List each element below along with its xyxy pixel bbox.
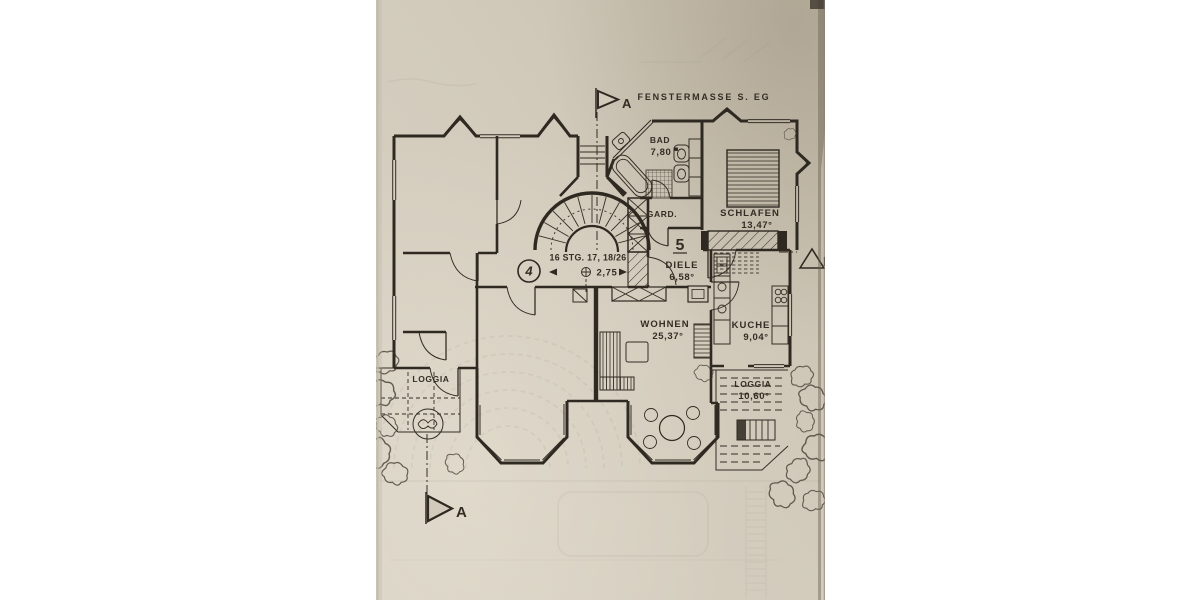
area-label-wohnen: 25,37° (652, 331, 683, 342)
stairs-note: 16 STG. 17, 18/26 (550, 253, 627, 263)
plan-note: FENSTERMASSE S. EG (638, 92, 771, 102)
room-label-gard: GARD. (647, 209, 677, 219)
bath-tiles (646, 170, 672, 198)
room-label-wohnen: WOHNEN (640, 319, 689, 330)
area-label-bad: 7,80 (651, 147, 672, 158)
area-label-kuche: 9,04° (743, 332, 768, 343)
unit-4-number: 4 (524, 264, 533, 279)
unit-5-number: 5 (676, 237, 685, 254)
room-label-loggia-right: LOGGIA (734, 379, 771, 389)
shaft-hatch (628, 252, 648, 287)
level-icon (582, 268, 591, 277)
section-letter-bottom: A (456, 504, 467, 521)
room-label-kuche: KUCHE (732, 320, 771, 331)
room-label-loggia-left: LOGGIA (412, 374, 449, 384)
area-label-schlafen: 13,47° (741, 220, 772, 231)
masonry-hatch-wall (701, 231, 787, 250)
area-label-diele: 6,58° (669, 272, 694, 283)
area-label-loggia-right: 10,60° (738, 391, 769, 402)
screenshot-root: A A B 2,75 4 5 (0, 0, 1200, 600)
sqm-mark (675, 148, 678, 151)
room-label-bad: BAD (650, 135, 670, 145)
floor-plan-photo: A A B 2,75 4 5 (0, 0, 1200, 600)
room-label-schlafen: SCHLAFEN (720, 208, 780, 219)
sideboard-icon (694, 324, 711, 358)
section-letter-top: A (622, 96, 632, 111)
room-label-diele: DIELE (666, 260, 699, 271)
level-value: 2,75 (597, 268, 618, 279)
bench-icon (737, 420, 775, 440)
kitchen-tile-strip (713, 252, 759, 274)
bed-icon (727, 150, 779, 207)
